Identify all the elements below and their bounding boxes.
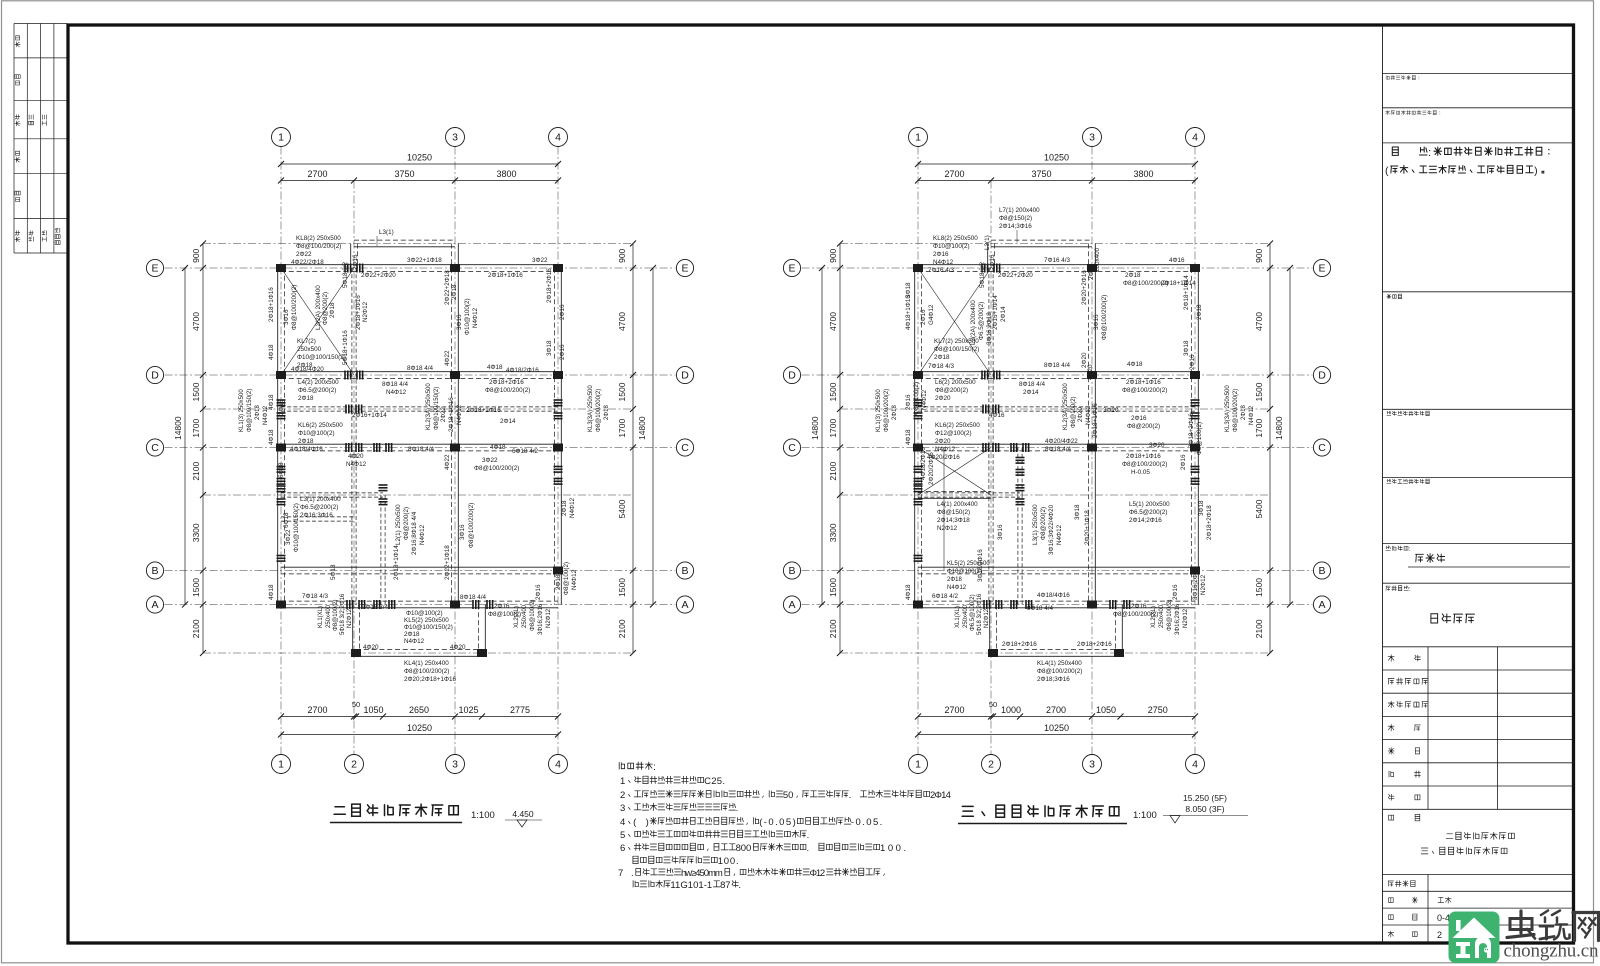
svg-text:4Φ18/4Φ16: 4Φ18/4Φ16 (1037, 592, 1070, 599)
svg-text:2Φ18+1Φ16: 2Φ18+1Φ16 (466, 407, 501, 414)
svg-text:N4Φ12: N4Φ12 (404, 638, 425, 645)
svg-text::: : (1409, 546, 1411, 553)
svg-text:5Φ18 3/2;2Φ16: 5Φ18 3/2;2Φ16 (977, 593, 983, 635)
svg-text:KL8(2) 250x500: KL8(2) 250x500 (296, 235, 341, 242)
svg-text:2Φ16: 2Φ16 (494, 603, 510, 610)
svg-text:4Φ18: 4Φ18 (905, 584, 912, 600)
svg-text:2100: 2100 (617, 619, 627, 638)
svg-text:KL1(3) 250x500: KL1(3) 250x500 (876, 389, 882, 432)
svg-text:8Φ18 4/4: 8Φ18 4/4 (1045, 446, 1072, 453)
svg-text:L2(2A) 200x400: L2(2A) 200x400 (315, 285, 322, 330)
svg-text:4Φ22: 4Φ22 (444, 454, 451, 470)
svg-text:Φ6.5@200(2): Φ6.5@200(2) (300, 504, 338, 511)
svg-text:G4Φ12: G4Φ12 (928, 304, 935, 325)
svg-text:2Φ16: 2Φ16 (1189, 354, 1196, 370)
svg-text:4Φ20: 4Φ20 (363, 644, 379, 651)
svg-text:.: . (807, 843, 810, 854)
svg-text:2650: 2650 (409, 705, 429, 715)
svg-text:N4Φ12: N4Φ12 (569, 497, 576, 518)
svg-text:2Φ18+2Φ16: 2Φ18+2Φ16 (1188, 413, 1195, 448)
svg-text:4Φ18: 4Φ18 (268, 394, 275, 410)
svg-text:4: 4 (555, 759, 561, 771)
svg-text:Φ6.5@200(2): Φ6.5@200(2) (978, 302, 985, 340)
svg-text:4Φ22: 4Φ22 (444, 350, 451, 366)
svg-text:2775: 2775 (510, 705, 530, 715)
svg-text:8Φ18 4/4: 8Φ18 4/4 (408, 446, 435, 453)
svg-text:2Φ18: 2Φ18 (892, 405, 898, 420)
svg-text:2Φ16;8Φ18 4/4: 2Φ16;8Φ18 4/4 (411, 511, 418, 555)
svg-text:2Φ14: 2Φ14 (500, 418, 516, 425)
svg-text:2Φ14: 2Φ14 (930, 790, 951, 801)
svg-text:4700: 4700 (828, 312, 838, 331)
svg-text:1700: 1700 (1254, 418, 1264, 437)
svg-text:3Φ18: 3Φ18 (905, 282, 912, 298)
svg-text:1500: 1500 (191, 578, 201, 597)
svg-text:2Φ14: 2Φ14 (1023, 389, 1039, 396)
svg-text:3Φ16: 3Φ16 (997, 524, 1004, 540)
svg-text:2Φ16: 2Φ16 (352, 254, 359, 270)
svg-text:A: A (1318, 599, 1325, 611)
svg-text:2Φ16+1Φ14: 2Φ16+1Φ14 (352, 412, 387, 419)
svg-text:2Φ22+2Φ18: 2Φ22+2Φ18 (444, 270, 451, 305)
svg-text:8Φ18 4/4: 8Φ18 4/4 (382, 381, 409, 388)
svg-text:Φ8@100/200(2): Φ8@100/200(2) (468, 503, 475, 548)
svg-text:2Φ18+2Φ16: 2Φ18+2Φ16 (1077, 641, 1112, 648)
svg-text:2Φ14;3Φ16: 2Φ14;3Φ16 (999, 223, 1032, 230)
svg-text:L3(1) 250x500: L3(1) 250x500 (1032, 504, 1039, 545)
svg-text:Φ8@100(2): Φ8@100(2) (333, 599, 339, 631)
svg-text:Φ8@100/200(2): Φ8@100/200(2) (296, 243, 341, 250)
svg-text:800: 800 (736, 843, 752, 854)
svg-text:2Φ14;3Φ18: 2Φ14;3Φ18 (937, 517, 970, 524)
svg-text:3Φ16;3Φ22/4Φ20: 3Φ16;3Φ22/4Φ20 (1048, 504, 1055, 555)
svg-text:N4Φ12: N4Φ12 (933, 259, 954, 266)
svg-text:N2Φ12: N2Φ12 (362, 301, 369, 322)
svg-text:2Φ18+1Φ16: 2Φ18+1Φ16 (488, 272, 523, 279)
svg-text:2Φ18;3Φ16: 2Φ18;3Φ16 (1037, 676, 1070, 683)
svg-text:Φ10@100(2): Φ10@100(2) (933, 243, 970, 250)
svg-text:chongzhu.cn: chongzhu.cn (1504, 941, 1600, 962)
svg-text:Φ6.5@200(2): Φ6.5@200(2) (298, 387, 336, 394)
svg-text:2Φ22+2Φ20: 2Φ22+2Φ20 (361, 272, 396, 279)
svg-text:D: D (1318, 370, 1326, 382)
svg-text:2Φ18: 2Φ18 (1241, 405, 1247, 420)
svg-text:2Φ22+2Φ20: 2Φ22+2Φ20 (998, 272, 1033, 279)
svg-text:Φ10@100/150(2): Φ10@100/150(2) (293, 503, 300, 552)
svg-text:4Φ16: 4Φ16 (989, 412, 1005, 419)
svg-text:4Φ18/2Φ16: 4Φ18/2Φ16 (506, 367, 539, 374)
svg-text:8Φ18 4/4: 8Φ18 4/4 (1019, 381, 1046, 388)
svg-text:2100: 2100 (828, 461, 838, 480)
svg-text:4: 4 (1192, 759, 1198, 771)
svg-text:Φ8@150(2): Φ8@150(2) (937, 509, 970, 516)
svg-text:4: 4 (620, 817, 625, 828)
svg-text:2Φ14: 2Φ14 (1000, 306, 1007, 322)
svg-text:10250: 10250 (407, 153, 432, 163)
svg-text:900: 900 (191, 248, 201, 262)
svg-text:14800: 14800 (810, 416, 820, 440)
svg-text:D: D (151, 370, 159, 382)
svg-text:15.250 (5F): 15.250 (5F) (1183, 793, 1227, 803)
svg-text:Φ8@100/200(2): Φ8@100/200(2) (474, 465, 519, 472)
svg-text:L2(1) 250x500: L2(1) 250x500 (395, 504, 402, 545)
svg-text:5400: 5400 (1254, 499, 1264, 518)
svg-text:XL2(XL): XL2(XL) (514, 606, 520, 628)
svg-text:1700: 1700 (617, 418, 627, 437)
svg-text:N2Φ12: N2Φ12 (546, 608, 552, 628)
svg-text:L6(2) 200x500: L6(2) 200x500 (935, 379, 976, 386)
svg-text:N4Φ12: N4Φ12 (935, 446, 956, 453)
svg-text:3Φ20: 3Φ20 (1103, 407, 1119, 414)
svg-text:2Φ18: 2Φ18 (561, 500, 568, 516)
svg-text:6Φ18: 6Φ18 (283, 512, 290, 528)
svg-text:1050: 1050 (1096, 705, 1116, 715)
svg-text:KL2(3A) 250x500: KL2(3A) 250x500 (426, 383, 432, 430)
svg-text:3Φ18: 3Φ18 (546, 340, 553, 356)
svg-text:C: C (681, 442, 689, 454)
svg-text:2Φ16: 2Φ16 (905, 394, 912, 410)
svg-text:4Φ18: 4Φ18 (268, 344, 275, 360)
svg-text:5Φ18: 5Φ18 (330, 564, 337, 580)
svg-text:Φ8@100/200(2): Φ8@100/200(2) (1101, 295, 1108, 340)
svg-text:3Φ18: 3Φ18 (1074, 504, 1081, 520)
svg-text:2Φ16: 2Φ16 (278, 399, 285, 415)
svg-text:2Φ18+2Φ16: 2Φ18+2Φ16 (546, 268, 553, 303)
svg-text:N4Φ12: N4Φ12 (947, 585, 967, 591)
svg-text:KL7(2): KL7(2) (297, 338, 316, 345)
svg-text:3: 3 (452, 759, 458, 771)
svg-text:11G101-1: 11G101-1 (670, 880, 712, 891)
svg-text:4Φ18/2Φ16: 4Φ18/2Φ16 (920, 447, 927, 480)
svg-text:1:100: 1:100 (1133, 810, 1157, 821)
svg-text:1500: 1500 (617, 382, 627, 401)
svg-text:Φ8@100/150(2): Φ8@100/150(2) (247, 389, 253, 432)
svg-text:B: B (788, 565, 795, 577)
svg-text:14800: 14800 (173, 416, 183, 440)
svg-text:Φ10@100(2): Φ10@100(2) (464, 298, 471, 335)
svg-text:D: D (681, 370, 689, 382)
svg-text:KL5(2) 250x500: KL5(2) 250x500 (404, 617, 449, 624)
svg-text:Φ8@200(2): Φ8@200(2) (1040, 507, 1047, 540)
svg-text:Φ6.5@200(2): Φ6.5@200(2) (1129, 509, 1167, 516)
svg-text:0-4: 0-4 (1437, 913, 1450, 923)
svg-text:D: D (788, 370, 796, 382)
svg-text:2Φ18: 2Φ18 (404, 631, 420, 638)
svg-text:1: 1 (915, 132, 921, 144)
svg-text:2Φ20: 2Φ20 (1078, 407, 1084, 422)
svg-text:1500: 1500 (617, 578, 627, 597)
svg-text:4: 4 (1192, 132, 1198, 144)
svg-text:2Φ16: 2Φ16 (535, 584, 542, 600)
svg-text:900: 900 (617, 248, 627, 262)
svg-text:Φ8@100/200(2): Φ8@100/200(2) (596, 389, 602, 432)
svg-text:3800: 3800 (1133, 169, 1153, 179)
svg-text:3: 3 (452, 132, 458, 144)
svg-text:3: 3 (1089, 132, 1095, 144)
svg-text:3Φ18/2Φ16: 3Φ18/2Φ16 (977, 549, 984, 582)
svg-text:4Φ16: 4Φ16 (1169, 257, 1185, 264)
svg-text:1000: 1000 (1001, 705, 1021, 715)
svg-text:Φ8@100(2): Φ8@100(2) (563, 562, 570, 595)
svg-text:KL2(3A) 250x500: KL2(3A) 250x500 (1063, 383, 1069, 430)
svg-text:1500: 1500 (191, 382, 201, 401)
svg-text:2Φ18+1Φ16: 2Φ18+1Φ16 (1126, 453, 1161, 460)
svg-text:2Φ18: 2Φ18 (555, 574, 562, 590)
svg-text:100.: 100. (718, 856, 739, 867)
svg-text:A: A (788, 599, 795, 611)
svg-text:KL4(1) 250x400: KL4(1) 250x400 (1037, 660, 1082, 667)
svg-text:N4Φ12: N4Φ12 (419, 524, 426, 545)
svg-text:1500: 1500 (1254, 578, 1264, 597)
svg-text:8Φ18 4/4: 8Φ18 4/4 (407, 365, 434, 372)
svg-text:3Φ16;2Φ18: 3Φ16;2Φ18 (986, 312, 993, 345)
svg-text:2Φ18: 2Φ18 (255, 405, 261, 420)
svg-text:3Φ22: 3Φ22 (285, 529, 292, 545)
svg-text:2100: 2100 (828, 619, 838, 638)
svg-text:(-0.05): (-0.05) (759, 817, 796, 828)
svg-text:4.450: 4.450 (512, 809, 534, 819)
svg-text:2Φ18+1Φ16: 2Φ18+1Φ16 (1092, 403, 1099, 438)
svg-text:Φ12: Φ12 (810, 868, 826, 879)
svg-text:4Φ18: 4Φ18 (905, 429, 912, 445)
svg-text::: : (1409, 586, 1411, 593)
svg-text:C: C (1318, 442, 1326, 454)
svg-text:5: 5 (620, 830, 625, 841)
svg-text:XL2(XL): XL2(XL) (1151, 606, 1157, 628)
svg-text:900: 900 (828, 248, 838, 262)
svg-text:KL3(3A) 250x500: KL3(3A) 250x500 (588, 385, 594, 432)
svg-text:KL8(2) 250x500: KL8(2) 250x500 (933, 235, 978, 242)
svg-text:KL3(3A) 250x500: KL3(3A) 250x500 (1225, 385, 1231, 432)
svg-text:Φ8@100(2): Φ8@100(2) (1167, 599, 1173, 631)
svg-text:N2Φ12: N2Φ12 (347, 608, 353, 628)
svg-text:N4Φ12: N4Φ12 (456, 404, 463, 425)
svg-text:A: A (151, 599, 158, 611)
svg-text:3Φ16: 3Φ16 (456, 314, 463, 330)
svg-text:L7(1) 200x400: L7(1) 200x400 (999, 207, 1040, 214)
svg-text:3750: 3750 (1031, 169, 1051, 179)
svg-text:6Φ18 4/2: 6Φ18 4/2 (512, 448, 539, 455)
svg-text:14800: 14800 (1274, 416, 1284, 440)
svg-text:3300: 3300 (191, 523, 201, 542)
svg-text:2Φ18+1Φ14: 2Φ18+1Φ14 (1183, 275, 1190, 310)
svg-text:250x500: 250x500 (297, 346, 322, 353)
svg-text:50: 50 (783, 790, 794, 801)
svg-text:Φ8@100/200(2): Φ8@100/200(2) (1122, 387, 1167, 394)
svg-text:2Φ20+1Φ18: 2Φ20+1Φ18 (1084, 510, 1091, 545)
svg-text:3800: 3800 (496, 169, 516, 179)
svg-text:6: 6 (620, 843, 625, 854)
svg-text:2Φ18: 2Φ18 (298, 438, 314, 445)
svg-text:2Φ22+1Φ18: 2Φ22+1Φ18 (444, 545, 451, 580)
svg-text:3Φ16;2Φ16: 3Φ16;2Φ16 (1175, 603, 1181, 635)
svg-text:1500: 1500 (1254, 382, 1264, 401)
svg-text:4Φ18/4Φ16: 4Φ18/4Φ16 (290, 446, 323, 453)
svg-text:): ) (1534, 165, 1538, 177)
svg-text:C: C (788, 442, 796, 454)
svg-text:6Φ18: 6Φ18 (278, 462, 285, 478)
svg-text:2: 2 (1437, 930, 1442, 940)
svg-text:2Φ18: 2Φ18 (298, 395, 314, 402)
svg-text:4Φ20: 4Φ20 (348, 453, 364, 460)
svg-text:1: 1 (620, 776, 625, 787)
svg-text:8.050 (3F): 8.050 (3F) (1185, 804, 1224, 814)
svg-text:5Φ18+1Φ16: 5Φ18+1Φ16 (342, 330, 349, 365)
svg-text:2Φ18: 2Φ18 (1125, 272, 1141, 279)
svg-text:N4Φ12: N4Φ12 (1249, 405, 1255, 425)
svg-text:N2Φ12: N2Φ12 (1200, 574, 1207, 595)
svg-text:3Φ16;2Φ16: 3Φ16;2Φ16 (1192, 567, 1199, 600)
svg-text:3Φ22+1Φ18: 3Φ22+1Φ18 (407, 257, 442, 264)
svg-text:( ): ( ) (633, 817, 649, 828)
svg-text:Φ8@100(2): Φ8@100(2) (1196, 422, 1203, 455)
svg-text:1: 1 (278, 759, 284, 771)
svg-text:Φ10@100(2): Φ10@100(2) (298, 430, 335, 437)
svg-text:E: E (151, 263, 158, 275)
svg-text:C25.: C25. (704, 776, 725, 787)
svg-text:2: 2 (988, 759, 994, 771)
svg-text:3Φ16: 3Φ16 (1093, 314, 1100, 330)
svg-text:4: 4 (555, 132, 561, 144)
svg-text:3Φ22: 3Φ22 (532, 257, 548, 264)
svg-text:2Φ18: 2Φ18 (934, 354, 950, 361)
svg-text:Φ8@200(2): Φ8@200(2) (403, 507, 410, 540)
svg-text:N2Φ12: N2Φ12 (1183, 608, 1189, 628)
svg-text:87: 87 (720, 880, 731, 891)
svg-text:2Φ20: 2Φ20 (935, 438, 951, 445)
svg-text:L3(1) 200x400: L3(1) 200x400 (300, 496, 341, 503)
svg-text:.: . (849, 790, 852, 801)
svg-text:2Φ16: 2Φ16 (559, 344, 566, 360)
svg-text:2: 2 (620, 790, 625, 801)
svg-text:3Φ20: 3Φ20 (1149, 442, 1165, 449)
svg-text:1:100: 1:100 (471, 810, 495, 821)
svg-text:L2(2A) 200x400: L2(2A) 200x400 (970, 300, 977, 345)
svg-text:7Φ16 4/3: 7Φ16 4/3 (928, 267, 955, 274)
svg-text:2700: 2700 (944, 705, 964, 715)
svg-text:N4Φ12: N4Φ12 (571, 569, 578, 590)
svg-text:3Φ16;2Φ16: 3Φ16;2Φ16 (538, 603, 544, 635)
svg-text:1025: 1025 (458, 705, 478, 715)
svg-text:2Φ18: 2Φ18 (604, 405, 610, 420)
svg-text:A: A (681, 599, 688, 611)
svg-text:Φ8@100/200(2): Φ8@100/200(2) (1037, 668, 1082, 675)
svg-text:N2Φ12: N2Φ12 (937, 525, 958, 532)
svg-text:1: 1 (278, 132, 284, 144)
svg-text:3Φ18: 3Φ18 (1183, 340, 1190, 356)
svg-text:Φ8@150(2): Φ8@150(2) (999, 215, 1032, 222)
svg-text:250x400: 250x400 (963, 604, 969, 628)
svg-text:Φ8@100/200(2): Φ8@100/200(2) (485, 387, 530, 394)
svg-text:2Φ18+2Φ16: 2Φ18+2Φ16 (1002, 641, 1037, 648)
svg-text:2Φ18+2Φ18: 2Φ18+2Φ18 (1206, 505, 1213, 540)
svg-text:Φ8@100(2): Φ8@100(2) (913, 382, 920, 415)
svg-text:2Φ18: 2Φ18 (947, 577, 962, 583)
svg-text:1700: 1700 (828, 418, 838, 437)
svg-text:Φ10@100/150(2): Φ10@100/150(2) (404, 624, 453, 631)
svg-text:1500: 1500 (828, 382, 838, 401)
svg-text:N4Φ12: N4Φ12 (921, 389, 928, 410)
svg-text:50: 50 (989, 700, 997, 709)
svg-text:2Φ16;3Φ16: 2Φ16;3Φ16 (300, 512, 333, 519)
svg-text:250x400: 250x400 (1159, 604, 1165, 628)
svg-text:E: E (788, 263, 795, 275)
svg-text:2: 2 (351, 759, 357, 771)
svg-text:4Φ18: 4Φ18 (1127, 361, 1143, 368)
svg-text:Φ8@100/200(2): Φ8@100/200(2) (291, 285, 298, 330)
svg-text:4Φ18: 4Φ18 (490, 444, 506, 451)
svg-text:900: 900 (1254, 248, 1264, 262)
svg-text:E: E (1318, 263, 1325, 275)
svg-text:Φ8@100/200(2): Φ8@100/200(2) (884, 389, 890, 432)
svg-text:4Φ18+1Φ16: 4Φ18+1Φ16 (905, 295, 912, 330)
svg-text:N4Φ12: N4Φ12 (346, 461, 367, 468)
svg-text:2Φ20+2Φ16: 2Φ20+2Φ16 (1081, 270, 1088, 305)
svg-text:2Φ18+2Φ16: 2Φ18+2Φ16 (489, 379, 524, 386)
svg-text:L3(1): L3(1) (984, 235, 991, 250)
svg-text:Φ8@200(2): Φ8@200(2) (322, 292, 329, 325)
svg-text:2Φ16+1Φ14: 2Φ16+1Φ14 (992, 295, 999, 330)
svg-text:8Φ18 4/4: 8Φ18 4/4 (1044, 362, 1071, 369)
svg-text:Φ10@100(2): Φ10@100(2) (406, 610, 443, 617)
svg-text:2Φ16: 2Φ16 (1172, 584, 1179, 600)
svg-text:2Φ20;2Φ18+1Φ16: 2Φ20;2Φ18+1Φ16 (404, 676, 457, 683)
svg-text:H-0.05: H-0.05 (1131, 469, 1150, 476)
svg-text:5Φ18 3/2: 5Φ18 3/2 (979, 261, 986, 288)
svg-text:2Φ18+1Φ16: 2Φ18+1Φ16 (268, 287, 275, 322)
svg-text:Φ12@100(2): Φ12@100(2) (935, 430, 972, 437)
svg-text:.: . (738, 880, 741, 891)
svg-text:N4Φ12: N4Φ12 (472, 307, 479, 328)
svg-text:4Φ20: 4Φ20 (450, 644, 466, 651)
svg-text:hw≥450mm: hw≥450mm (681, 868, 723, 879)
svg-text:L5(1) 200x500: L5(1) 200x500 (1129, 501, 1170, 508)
svg-text:3750: 3750 (394, 169, 414, 179)
svg-text:2700: 2700 (307, 705, 327, 715)
svg-text:4Φ22/2Φ18: 4Φ22/2Φ18 (291, 259, 324, 266)
svg-text:2700: 2700 (1046, 705, 1066, 715)
svg-text:KL1(3) 250x500: KL1(3) 250x500 (239, 389, 245, 432)
svg-text:B: B (151, 565, 158, 577)
svg-text:5400: 5400 (617, 499, 627, 518)
svg-text:4Φ20: 4Φ20 (1087, 364, 1094, 380)
svg-text:2100: 2100 (191, 461, 201, 480)
svg-text:XL1(XL): XL1(XL) (955, 606, 961, 628)
svg-text:2Φ18+1Φ16: 2Φ18+1Φ16 (355, 295, 362, 330)
svg-text:C: C (151, 442, 159, 454)
svg-text:5Φ18 3/2;2Φ16: 5Φ18 3/2;2Φ16 (340, 593, 346, 635)
svg-text:250x400: 250x400 (326, 604, 332, 628)
svg-text:6Φ18 4/2: 6Φ18 4/2 (932, 593, 959, 600)
svg-text:2Φ16: 2Φ16 (933, 251, 949, 258)
svg-text:2750: 2750 (1148, 705, 1168, 715)
svg-text:2Φ22: 2Φ22 (296, 251, 312, 258)
svg-text:N2Φ12: N2Φ12 (984, 608, 990, 628)
svg-text:8Φ18 4/4: 8Φ18 4/4 (1027, 605, 1054, 612)
svg-text:4Φ18: 4Φ18 (268, 584, 275, 600)
svg-text:3Φ18: 3Φ18 (1198, 500, 1205, 516)
svg-text:2Φ22: 2Φ22 (441, 407, 447, 422)
svg-text:2Φ14;2Φ16: 2Φ14;2Φ16 (1129, 517, 1162, 524)
svg-text:.: . (736, 803, 739, 814)
svg-text:2700: 2700 (307, 169, 327, 179)
svg-text:N4Φ12: N4Φ12 (386, 389, 407, 396)
svg-text:7Φ18 3/4: 7Φ18 3/4 (362, 604, 389, 611)
svg-text:2Φ18: 2Φ18 (451, 284, 458, 300)
svg-text:Φ6.5@100(2): Φ6.5@100(2) (970, 594, 976, 631)
svg-text:3Φ16: 3Φ16 (283, 309, 290, 325)
svg-text:Φ8@200(2): Φ8@200(2) (1127, 423, 1160, 430)
